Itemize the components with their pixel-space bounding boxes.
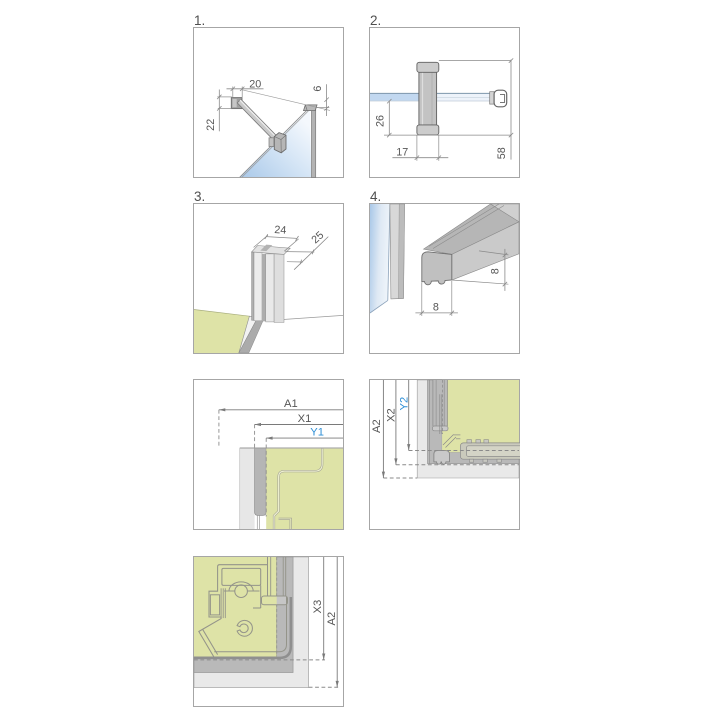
svg-text:8: 8 xyxy=(433,301,439,313)
svg-text:17: 17 xyxy=(396,146,408,158)
svg-text:22: 22 xyxy=(205,119,217,131)
svg-text:26: 26 xyxy=(374,115,386,127)
svg-text:24: 24 xyxy=(274,224,287,237)
svg-text:X2: X2 xyxy=(386,408,398,422)
svg-text:Y2: Y2 xyxy=(399,397,411,411)
svg-text:6: 6 xyxy=(312,86,324,92)
svg-text:Y1: Y1 xyxy=(310,427,324,439)
svg-text:A2: A2 xyxy=(326,612,338,626)
svg-text:X1: X1 xyxy=(298,413,312,425)
svg-text:A2: A2 xyxy=(371,419,383,433)
svg-text:8: 8 xyxy=(489,268,501,274)
svg-text:X3: X3 xyxy=(312,600,324,614)
svg-text:58: 58 xyxy=(496,147,508,159)
svg-text:A1: A1 xyxy=(284,398,298,410)
svg-text:20: 20 xyxy=(249,78,261,90)
